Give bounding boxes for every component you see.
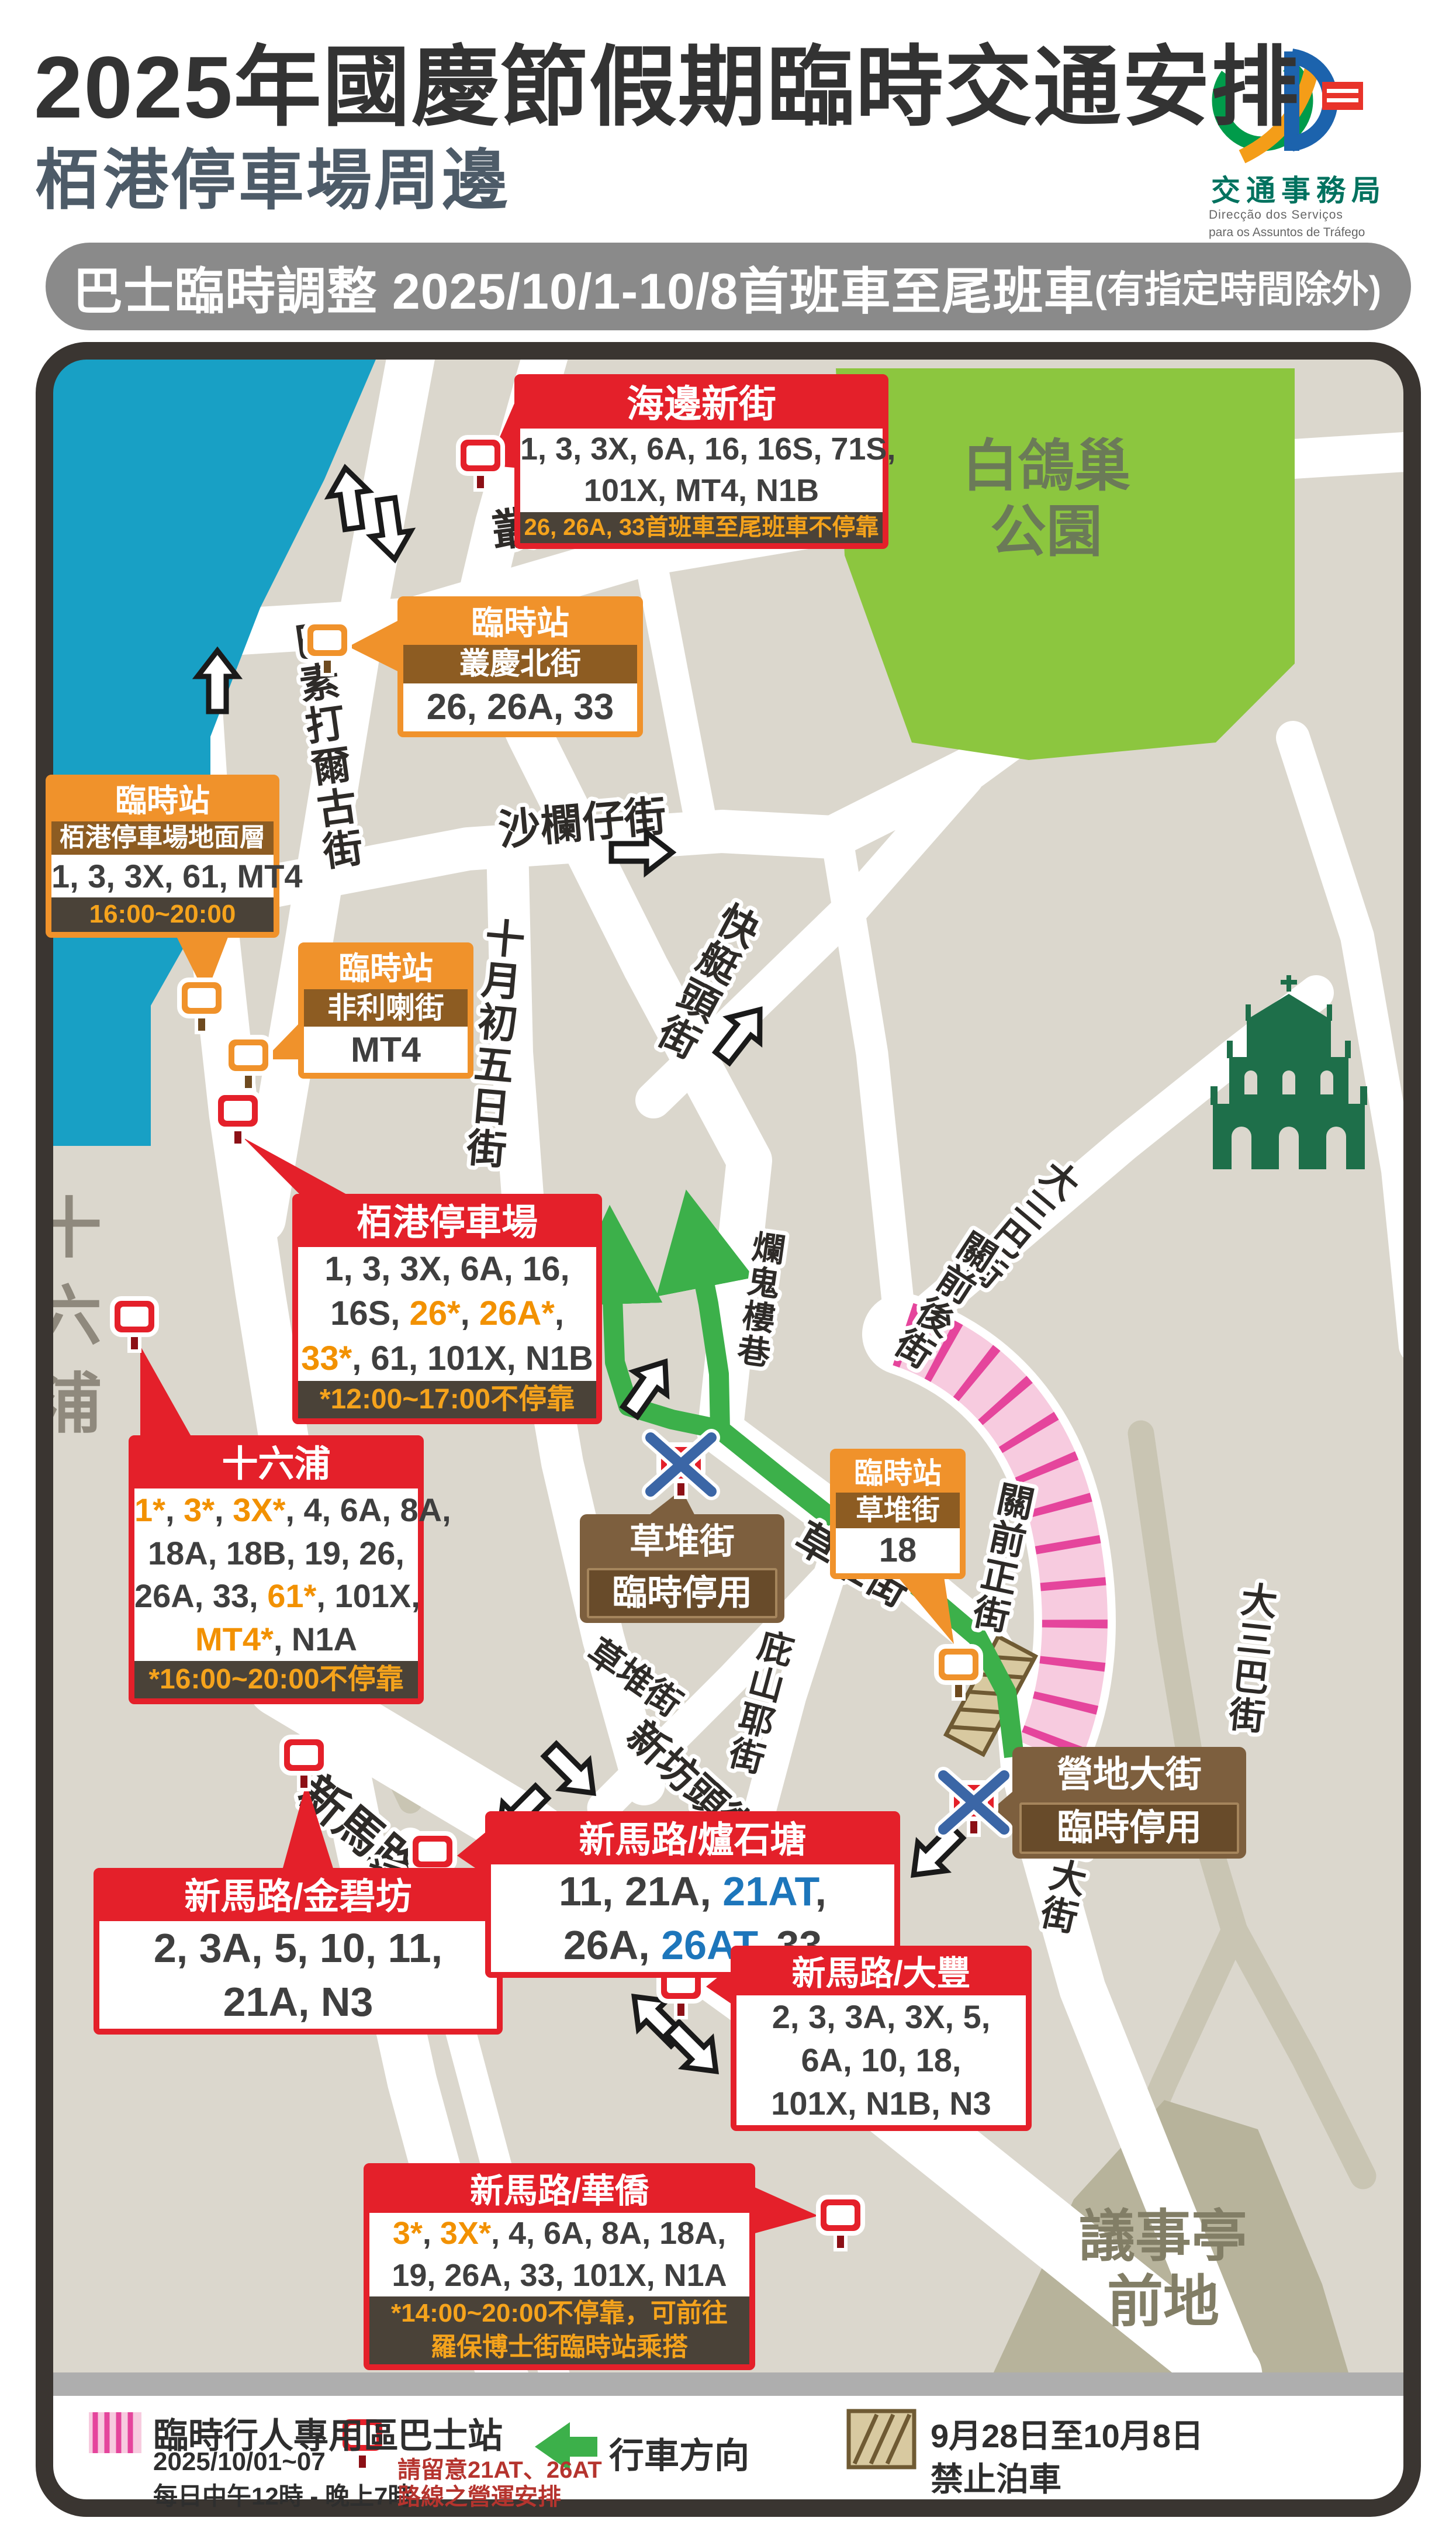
callout-routes-line: 6A, 10, 18, [736,2039,1026,2082]
callout-header: 新馬路/金碧坊 [99,1874,497,1921]
callout-routes-line: 19, 26A, 33, 101X, N1A [369,2255,749,2296]
route-token: , [461,1294,479,1332]
route-token: , [555,1294,564,1332]
route-token: , [423,2216,440,2251]
route-token: 3* [393,2216,423,2251]
callout-header: 海邊新街 [520,380,883,429]
route-token: 18A, 18B, 19, 26, [148,1535,404,1572]
logo-org-name-pt-line2: para os Assuntos de Tráfego [1209,226,1365,240]
route-token: 19, 26A, 33, 101X, N1A [392,2258,727,2293]
callout-routes-line: 26, 26A, 33 [403,683,637,731]
route-token: 21AT [722,1869,815,1914]
route-token: 26* [410,1294,461,1332]
callout-routes-line: 2, 3, 3A, 3X, 5, [736,1995,1026,2039]
callout-routes-line: 18A, 18B, 19, 26, [134,1532,418,1575]
route-token: 2, 3, 3A, 3X, 5, [772,1998,991,2035]
callout-routes-line: 11, 21A, 21AT, [491,1864,894,1918]
legend-nopark-line2: 禁止泊車 [931,2453,1061,2501]
bus-stop-草堆街(臨時停用) [651,1438,711,1497]
callout-header: 臨時站 [836,1455,960,1493]
callout-routes-line: 26A, 33, 61*, 101X, [134,1574,418,1618]
callout-subheader: 非利喇街 [304,989,468,1027]
callout-routes-line: MT4 [304,1027,468,1073]
callout-footer-line: *16:00~20:00不停靠 [134,1661,418,1698]
banner-text: 巴士臨時調整 2025/10/1-10/8首班車至尾班車 [72,250,1095,323]
callout-routes-line: 1*, 3*, 3X*, 4, 6A, 8A, [134,1488,418,1532]
route-token: 21A, N3 [223,1979,373,2025]
route-token: 26A, 33, [134,1577,267,1614]
route-token: 16S, [330,1294,409,1332]
callout-routes-line: 2, 3A, 5, 10, 11, [99,1921,497,1975]
legend-stop-note2: 路線之營運安排 [397,2478,561,2512]
route-token: 1, 3, 3X, 6A, 16, 16S, 71S, [520,431,895,467]
area-label-公園: 公園 [990,500,1102,563]
callout-sapkoupou: 十六浦1*, 3*, 3X*, 4, 6A, 8A,18A, 18B, 19, … [129,1435,424,1704]
camoes-park [836,368,1295,760]
route-token: , 101X, [316,1577,420,1614]
route-token: 3* [184,1491,215,1528]
route-token: 6A, 10, 18, [801,2042,962,2078]
route-token: 1, 3, 3X, 61, MT4 [51,858,303,894]
area-label-議事亭: 議事亭 [1079,2205,1247,2268]
callout-line: 草堆街 [587,1519,777,1564]
route-token: 1, 3, 3X, 6A, 16, [324,1250,569,1288]
callout-header: 栢港停車場 [298,1200,596,1247]
legend-ped-sub2: 每日中午12時 - 晚上7時 [153,2477,412,2512]
legend-ped-sub1: 2025/10/01~07 [153,2447,326,2477]
callout-routes-line: 101X, MT4, N1B [520,470,883,512]
logo-org-name-pt-line1: Direcção dos Serviços [1209,208,1343,222]
callout-dimianceng: 臨時站栢港停車場地面層1, 3, 3X, 61, MT416:00~20:00 [46,775,279,938]
callout-routes-line: 1, 3, 3X, 61, MT4 [51,855,274,898]
page-title: 2025年國慶節假期臨時交通安排 [34,16,1300,143]
logo-red-flag [1322,82,1363,110]
callout-routes-line: 33*, 61, 101X, N1B [298,1336,596,1382]
area-label-前地: 前地 [1107,2271,1219,2333]
legend-nopark-swatch [849,2411,914,2467]
route-token: 61* [267,1577,316,1614]
callout-routes-line: 16S, 26*, 26A*, [298,1291,596,1336]
callout-header: 新馬路/華僑 [369,2169,749,2213]
callout-caoduijie18: 臨時站草堆街18 [830,1449,966,1579]
route-token: 26, 26A, 33 [427,687,614,727]
callout-header: 臨時站 [51,780,274,821]
route-token: 18 [879,1531,917,1569]
callout-footer-line: 羅保博士街臨時站乘搭 [369,2330,749,2364]
route-token: , N1A [274,1621,357,1657]
route-token: , 61, 101X, N1B [352,1339,593,1377]
route-token: 33* [301,1339,352,1377]
callout-subheader: 叢慶北街 [403,645,637,684]
callout-footer-line: 16:00~20:00 [51,897,274,931]
callout-congqingbeijie: 臨時站叢慶北街26, 26A, 33 [397,596,643,737]
route-token: , [815,1869,826,1914]
callout-routes-line: MT4*, N1A [134,1618,418,1661]
notice-banner: 巴士臨時調整 2025/10/1-10/8首班車至尾班車 (有指定時間除外) [46,243,1411,330]
route-token: 26A* [479,1294,555,1332]
callout-subheader: 草堆街 [836,1493,960,1528]
callout-footer-line: *14:00~20:00不停靠，可前往 [369,2296,749,2330]
legend-direction-title: 行車方向 [609,2427,749,2478]
bus-stop-營地大街(臨時停用) [943,1776,1004,1835]
route-token: 2, 3A, 5, 10, 11, [154,1925,442,1971]
callout-pakkong: 栢港停車場1, 3, 3X, 6A, 16,16S, 26*, 26A*,33*… [292,1194,602,1424]
route-token: 101X, N1B, N3 [771,2085,991,2122]
callout-jinbifang: 新馬路/金碧坊2, 3A, 5, 10, 11,21A, N3 [94,1868,503,2035]
callout-line: 臨時停用 [1019,1802,1239,1854]
route-token: 26A, [563,1922,661,1968]
callout-header: 新馬路/大豐 [736,1952,1026,1995]
callout-caoduijie-closed: 草堆街臨時停用 [580,1514,784,1623]
callout-footer-line: 26, 26A, 33首班車至尾班車不停靠 [520,512,883,543]
route-token: MT4 [351,1030,421,1069]
callout-routes-line: 101X, N1B, N3 [736,2082,1026,2125]
callout-footer-line: *12:00~17:00不停靠 [298,1381,596,1418]
callout-huaqiao: 新馬路/華僑3*, 3X*, 4, 6A, 8A, 18A,19, 26A, 3… [364,2163,755,2370]
callout-haibianxinjie: 海邊新街1, 3, 3X, 6A, 16, 16S, 71S,101X, MT4… [514,374,888,549]
route-token: , [165,1491,184,1528]
route-token: 3X* [233,1491,285,1528]
callout-routes-line: 21A, N3 [99,1975,497,2029]
callout-routes-line: 1, 3, 3X, 6A, 16, [298,1247,596,1292]
route-token: 101X, MT4, N1B [584,473,819,508]
route-token: , 4, 6A, 8A, [285,1491,451,1528]
callout-routes-line: 18 [836,1528,960,1573]
callout-header: 十六浦 [134,1441,418,1488]
callout-header: 臨時站 [403,602,637,645]
bottom-street [51,2372,1405,2396]
callout-feililajie: 臨時站非利喇街MT4 [298,942,473,1079]
callout-routes-line: 1, 3, 3X, 6A, 16, 16S, 71S, [520,429,883,470]
callout-header: 臨時站 [304,948,468,989]
callout-line: 臨時停用 [587,1568,777,1618]
route-token: , 4, 6A, 8A, 18A, [491,2216,726,2251]
legend-ped-swatch [89,2412,141,2453]
area-label-白鴿巢: 白鴿巢 [962,435,1130,498]
callout-dafeng: 新馬路/大豐2, 3, 3A, 3X, 5,6A, 10, 18,101X, N… [731,1946,1032,2131]
page-subtitle: 栢港停車場周邊 [35,127,510,222]
callout-line: 營地大街 [1019,1752,1239,1799]
route-token: 3X* [440,2216,491,2251]
banner-note: (有指定時間除外) [1095,260,1382,313]
callout-subheader: 栢港停車場地面層 [51,821,274,854]
legend-nopark-line1: 9月28日至10月8日 [931,2410,1203,2457]
route-token: MT4* [195,1621,274,1657]
callout-yingdidajie-closed: 營地大街臨時停用 [1012,1747,1246,1859]
callout-header: 新馬路/爐石塘 [491,1817,894,1864]
route-token: 1* [134,1491,165,1528]
logo-org-name: 交通事務局 [1211,167,1386,209]
route-token: 11, 21A, [559,1869,722,1914]
callout-routes-line: 3*, 3X*, 4, 6A, 8A, 18A, [369,2213,749,2254]
route-token: , [215,1491,233,1528]
